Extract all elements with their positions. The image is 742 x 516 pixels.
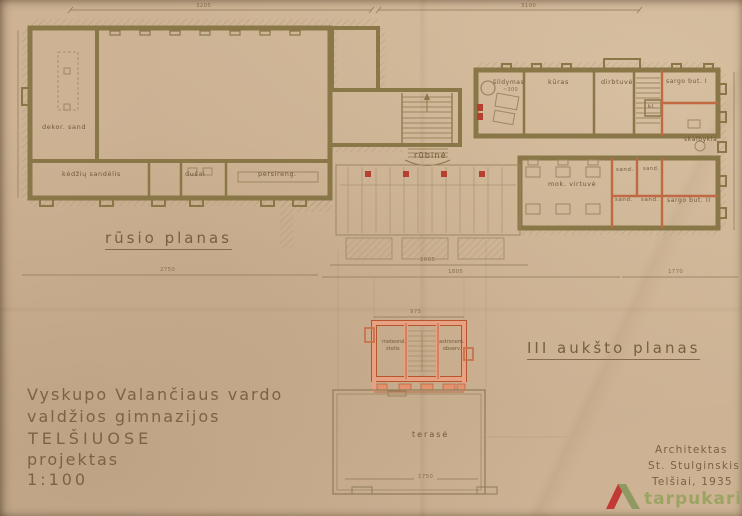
watermark-label: tarpukaris <box>644 491 742 508</box>
scanned-blueprint-page: dekor. sand kėdžių sandėlis dušai persir… <box>0 0 742 516</box>
tarpukaris-logo-mark <box>0 0 742 516</box>
